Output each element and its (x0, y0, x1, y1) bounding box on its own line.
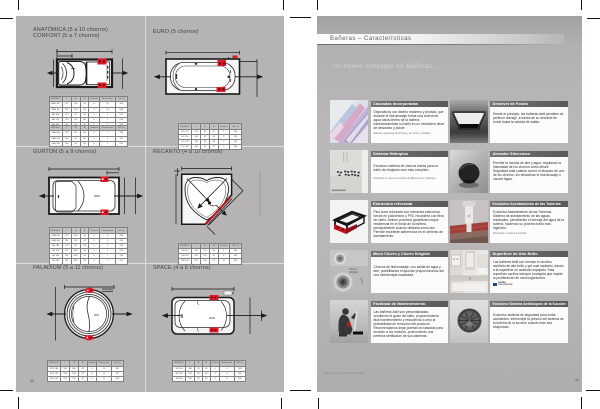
svg-text:Dirigible: Dirigible (349, 271, 359, 274)
